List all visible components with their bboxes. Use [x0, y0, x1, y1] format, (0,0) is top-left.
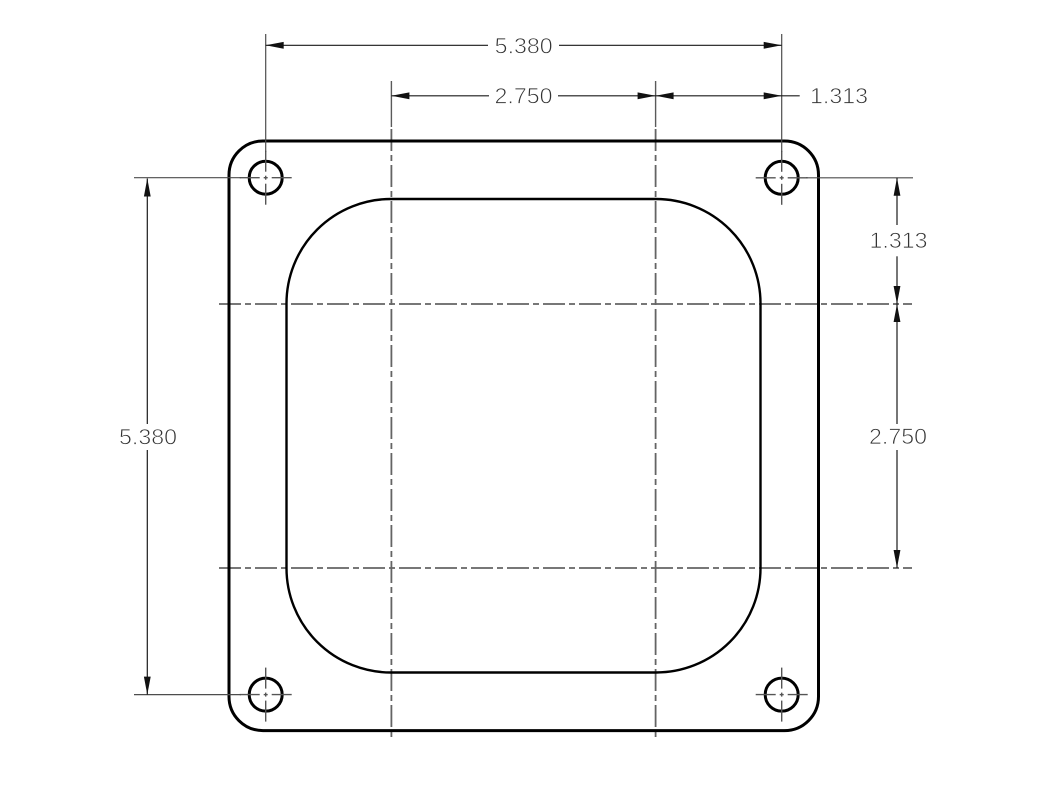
svg-text:5.380: 5.380 — [119, 424, 177, 449]
svg-text:5.380: 5.380 — [495, 34, 553, 59]
svg-text:2.750: 2.750 — [495, 83, 553, 108]
svg-text:1.313: 1.313 — [870, 228, 928, 253]
svg-text:2.750: 2.750 — [869, 424, 927, 449]
svg-text:1.313: 1.313 — [810, 83, 868, 108]
